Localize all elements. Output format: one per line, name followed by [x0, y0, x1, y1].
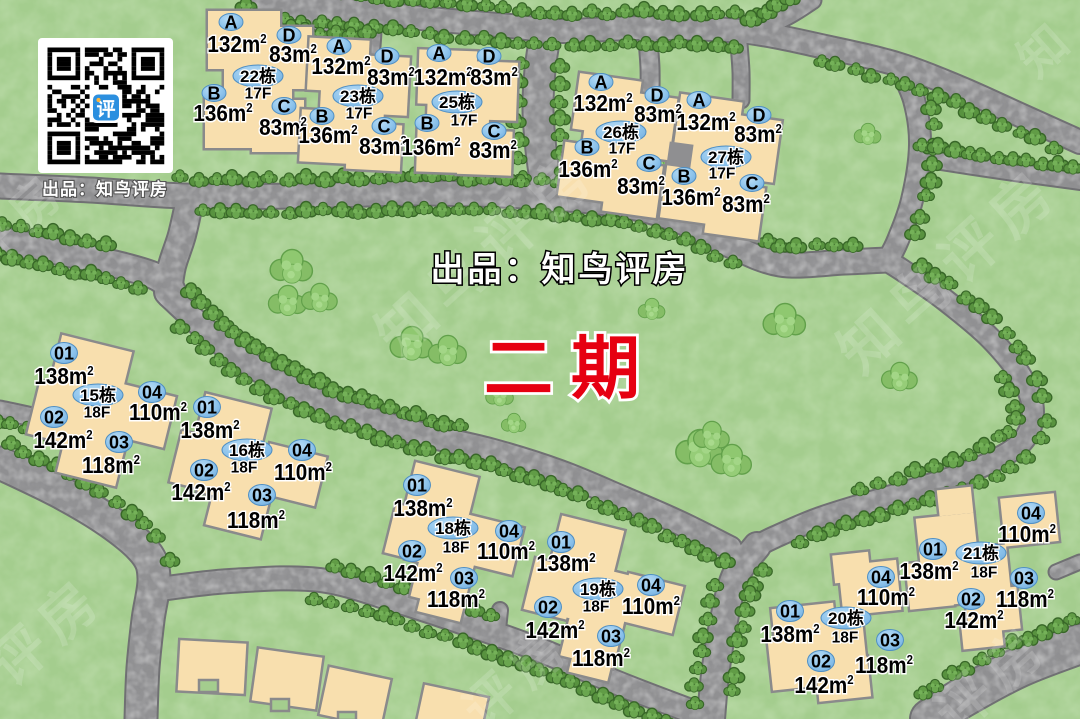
svg-text:18F: 18F — [231, 460, 258, 477]
svg-text:22栋: 22栋 — [240, 66, 276, 86]
svg-text:136m2: 136m2 — [193, 100, 252, 127]
svg-text:21栋: 21栋 — [963, 543, 999, 563]
svg-text:136m2: 136m2 — [558, 156, 617, 183]
svg-text:18F: 18F — [443, 540, 470, 557]
svg-text:03: 03 — [880, 631, 900, 651]
svg-text:110m2: 110m2 — [857, 584, 915, 611]
svg-text:01: 01 — [54, 344, 74, 364]
svg-text:18F: 18F — [583, 599, 610, 616]
svg-text:132m2: 132m2 — [573, 90, 632, 117]
svg-text:01: 01 — [923, 540, 943, 560]
svg-text:03: 03 — [252, 486, 272, 506]
svg-text:B: B — [581, 138, 594, 158]
svg-text:18F: 18F — [832, 630, 859, 647]
svg-text:A: A — [433, 44, 446, 64]
svg-text:132m2: 132m2 — [413, 64, 472, 91]
svg-text:110m2: 110m2 — [998, 521, 1056, 548]
svg-text:二期: 二期 — [484, 330, 658, 407]
svg-text:18F: 18F — [971, 565, 998, 582]
svg-text:83m2: 83m2 — [634, 101, 682, 128]
svg-text:出品：知鸟评房: 出品：知鸟评房 — [42, 179, 168, 199]
svg-text:01: 01 — [407, 476, 427, 496]
svg-text:B: B — [421, 114, 434, 134]
svg-text:118m2: 118m2 — [427, 586, 485, 613]
svg-text:20栋: 20栋 — [828, 608, 864, 628]
svg-text:132m2: 132m2 — [676, 109, 735, 136]
svg-text:83m2: 83m2 — [617, 173, 665, 200]
svg-text:17F: 17F — [709, 166, 736, 183]
svg-text:142m2: 142m2 — [525, 617, 584, 644]
svg-text:138m2: 138m2 — [34, 363, 93, 390]
svg-text:110m2: 110m2 — [274, 459, 332, 486]
svg-text:25栋: 25栋 — [439, 92, 475, 112]
svg-text:142m2: 142m2 — [33, 427, 92, 454]
svg-text:03: 03 — [109, 433, 129, 453]
svg-text:A: A — [693, 91, 706, 111]
svg-text:83m2: 83m2 — [359, 133, 407, 160]
svg-text:02: 02 — [194, 461, 214, 481]
svg-text:83m2: 83m2 — [469, 137, 517, 164]
svg-text:136m2: 136m2 — [401, 134, 460, 161]
svg-text:C: C — [643, 154, 656, 174]
svg-text:110m2: 110m2 — [129, 399, 187, 426]
svg-text:132m2: 132m2 — [311, 53, 370, 80]
svg-text:17F: 17F — [451, 113, 478, 130]
svg-text:110m2: 110m2 — [477, 538, 535, 565]
svg-text:138m2: 138m2 — [899, 558, 958, 585]
svg-text:142m2: 142m2 — [171, 479, 230, 506]
svg-text:118m2: 118m2 — [855, 652, 913, 679]
svg-text:03: 03 — [601, 627, 621, 647]
svg-text:83m2: 83m2 — [734, 121, 782, 148]
svg-text:出品：知鸟评房: 出品：知鸟评房 — [431, 251, 690, 289]
svg-text:142m2: 142m2 — [383, 560, 442, 587]
svg-text:142m2: 142m2 — [944, 607, 1003, 634]
svg-text:16栋: 16栋 — [229, 440, 265, 460]
svg-text:17F: 17F — [346, 106, 373, 123]
svg-text:01: 01 — [197, 398, 217, 418]
svg-text:17F: 17F — [609, 141, 636, 158]
svg-text:02: 02 — [44, 408, 64, 428]
svg-text:138m2: 138m2 — [393, 495, 452, 522]
svg-text:02: 02 — [538, 598, 558, 618]
svg-text:118m2: 118m2 — [572, 645, 630, 672]
svg-text:83m2: 83m2 — [269, 41, 317, 68]
svg-text:02: 02 — [402, 542, 422, 562]
svg-text:136m2: 136m2 — [298, 122, 357, 149]
svg-text:142m2: 142m2 — [794, 672, 853, 699]
svg-text:136m2: 136m2 — [661, 184, 720, 211]
svg-text:04: 04 — [292, 441, 312, 461]
svg-text:19栋: 19栋 — [580, 579, 616, 599]
svg-text:02: 02 — [811, 652, 831, 672]
svg-text:A: A — [225, 13, 238, 33]
svg-text:132m2: 132m2 — [207, 31, 266, 58]
svg-text:138m2: 138m2 — [760, 621, 819, 648]
svg-text:83m2: 83m2 — [367, 64, 415, 91]
svg-text:83m2: 83m2 — [722, 191, 770, 218]
svg-text:83m2: 83m2 — [470, 64, 518, 91]
svg-text:118m2: 118m2 — [996, 586, 1054, 613]
svg-text:01: 01 — [780, 602, 800, 622]
svg-text:18F: 18F — [84, 405, 111, 422]
svg-text:138m2: 138m2 — [536, 550, 595, 577]
svg-text:27栋: 27栋 — [708, 147, 744, 167]
svg-text:17F: 17F — [245, 86, 272, 103]
svg-text:138m2: 138m2 — [180, 417, 239, 444]
svg-text:118m2: 118m2 — [82, 452, 140, 479]
svg-text:110m2: 110m2 — [622, 593, 680, 620]
svg-text:118m2: 118m2 — [227, 507, 285, 534]
